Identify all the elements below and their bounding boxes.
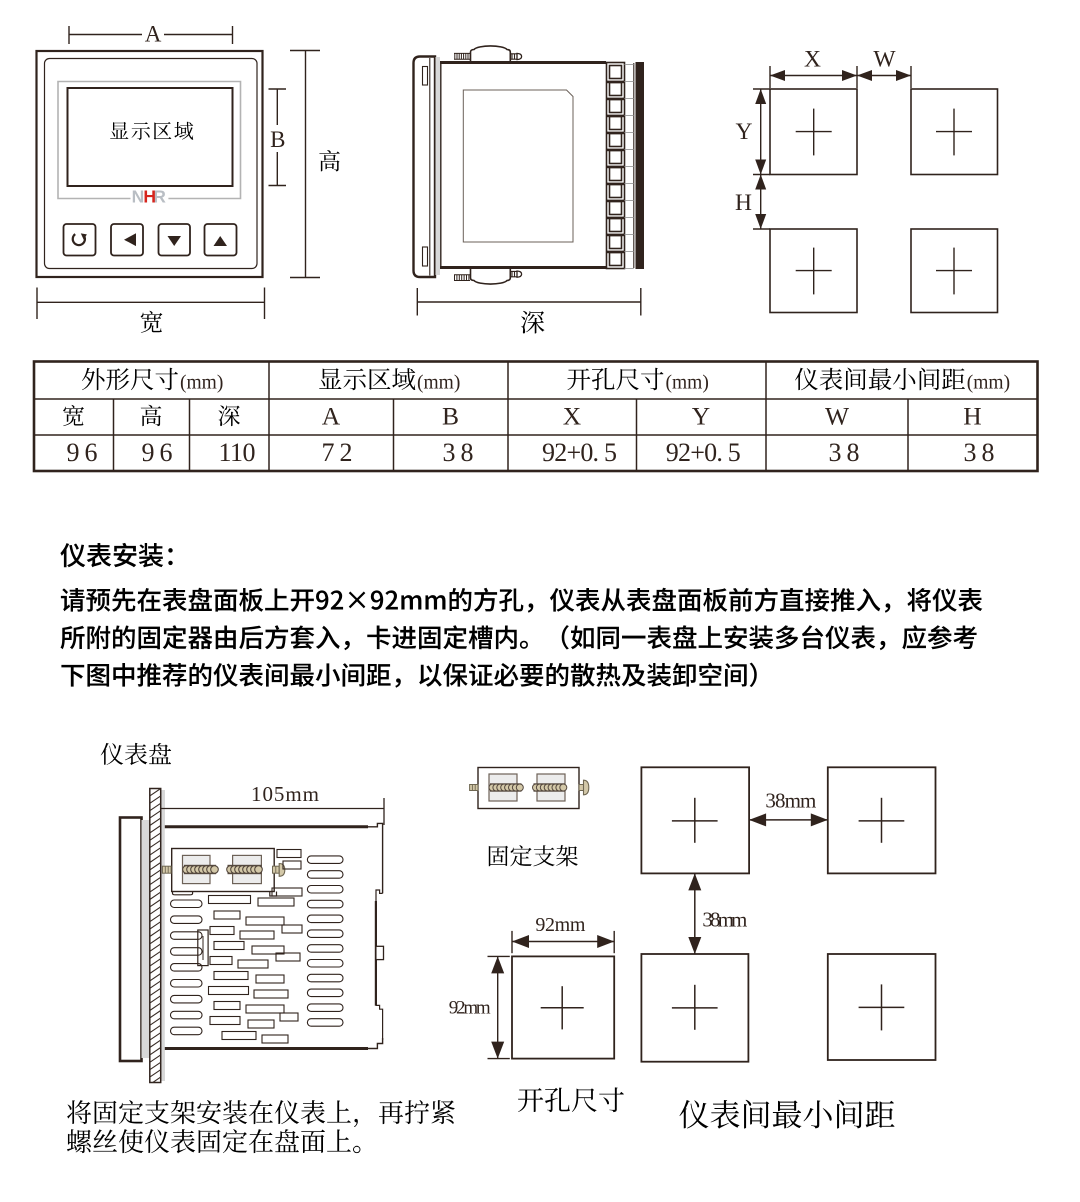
svg-text:(mm): (mm)	[967, 372, 1010, 393]
svg-text:B: B	[270, 127, 285, 152]
svg-text:X: X	[563, 401, 581, 430]
svg-text:38: 38	[443, 438, 474, 467]
svg-text:(mm): (mm)	[417, 372, 460, 393]
svg-text:110: 110	[219, 438, 256, 467]
svg-text:W: W	[825, 401, 850, 430]
svg-text:H: H	[735, 190, 752, 216]
svg-text:92mm: 92mm	[535, 914, 585, 936]
svg-text:92mm: 92mm	[449, 998, 491, 1019]
svg-text:38mm: 38mm	[702, 908, 747, 932]
svg-text:H: H	[143, 186, 156, 206]
svg-text:38: 38	[964, 438, 995, 467]
svg-text:96: 96	[67, 438, 98, 467]
svg-text:38mm: 38mm	[765, 789, 816, 813]
svg-text:92+0. 5: 92+0. 5	[542, 438, 617, 467]
svg-text:A: A	[145, 22, 162, 47]
svg-text:Y: Y	[736, 119, 753, 145]
svg-text:Y: Y	[692, 401, 710, 430]
svg-text:B: B	[442, 401, 459, 430]
svg-text:W: W	[873, 47, 896, 73]
svg-text:N: N	[132, 186, 145, 206]
svg-text:96: 96	[142, 438, 173, 467]
svg-text:72: 72	[322, 438, 353, 467]
svg-text:105mm: 105mm	[251, 782, 319, 806]
svg-text:A: A	[322, 401, 341, 430]
svg-text:(mm): (mm)	[180, 372, 223, 393]
svg-text:X: X	[804, 47, 821, 73]
svg-text:38: 38	[829, 438, 860, 467]
svg-text:(mm): (mm)	[666, 372, 709, 393]
svg-text:92+0. 5: 92+0. 5	[666, 438, 741, 467]
svg-text:H: H	[963, 401, 981, 430]
